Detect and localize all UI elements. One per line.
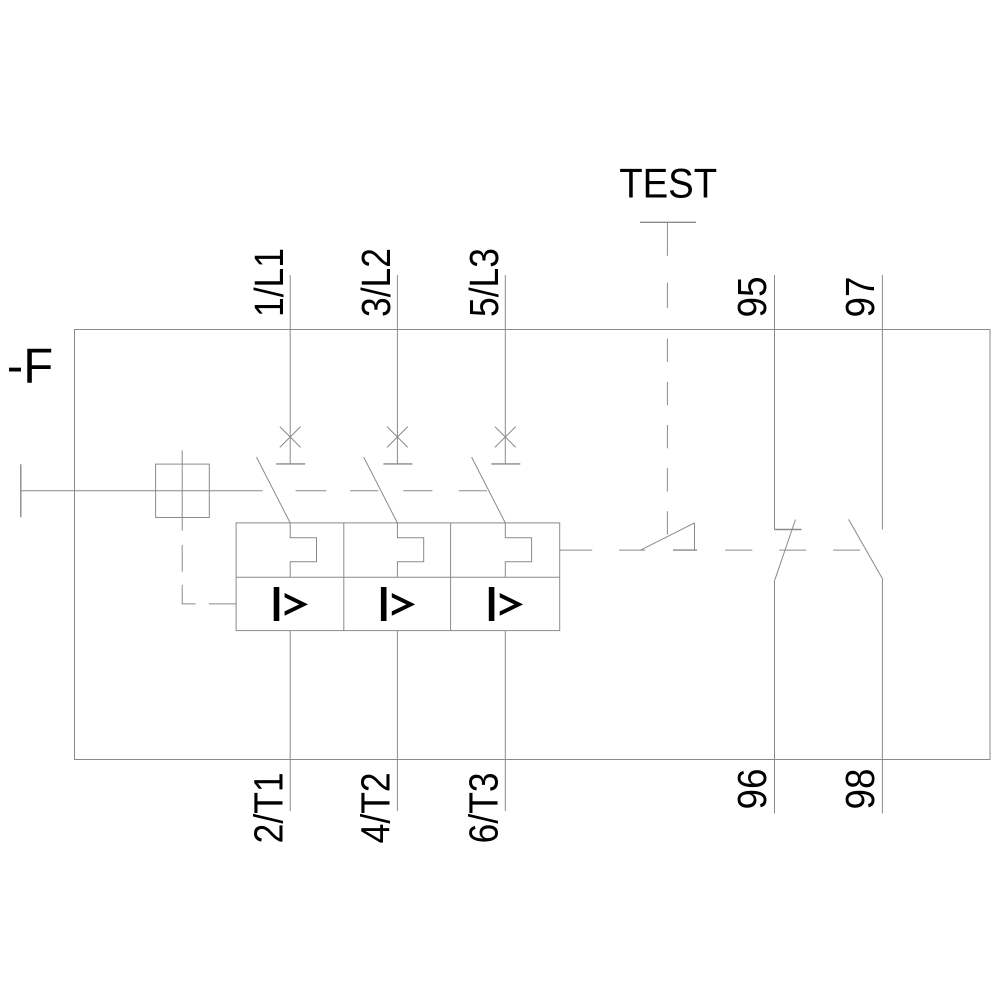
svg-text:97: 97 [837,277,883,318]
svg-text:98: 98 [837,769,883,810]
svg-text:1/L1: 1/L1 [246,248,292,317]
svg-text:5/L3: 5/L3 [461,248,507,317]
svg-text:4/T2: 4/T2 [353,772,399,843]
svg-text:96: 96 [729,769,775,810]
svg-text:TEST: TEST [619,160,717,207]
svg-text:6/T3: 6/T3 [461,772,507,843]
svg-text:-F: -F [7,339,53,393]
svg-text:2/T1: 2/T1 [246,772,292,843]
svg-text:95: 95 [729,277,775,318]
svg-text:3/L2: 3/L2 [353,248,399,317]
